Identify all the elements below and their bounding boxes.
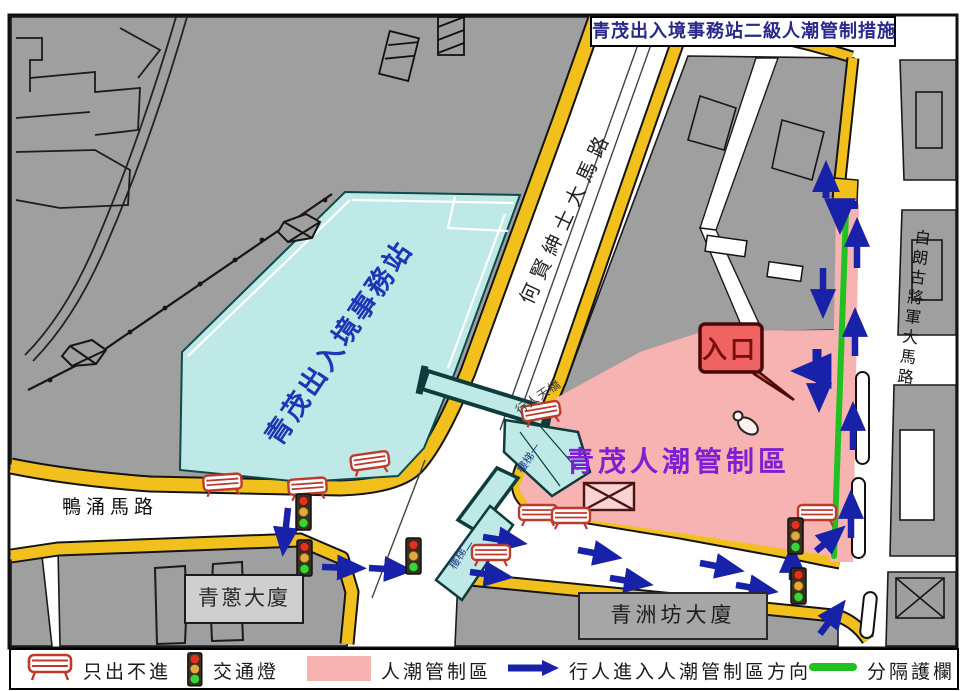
exit-only-barrier-icon <box>27 653 73 683</box>
legend-label-separation-fence: 分隔護欄 <box>867 657 955 684</box>
entrance-label: 入口 <box>701 330 759 366</box>
legend: 只出不進 交通燈 人潮管制區 行人進入人潮管制區方向 分隔護欄 <box>9 648 959 690</box>
building-label-cheng-chong: 青蔥大廈 <box>184 574 304 624</box>
traffic-light-icon <box>187 652 203 687</box>
traffic-light-icon <box>788 518 803 554</box>
building-label-ilha-verde: 青洲坊大廈 <box>578 592 768 640</box>
traffic-light-icon <box>296 494 311 530</box>
crossed-box <box>584 483 634 510</box>
road-label-ap-chung: 鴨涌馬路 <box>62 492 158 519</box>
legend-label-traffic-light: 交通燈 <box>213 657 279 684</box>
traffic-light-icon <box>406 538 421 574</box>
crowd-zone-swatch <box>307 656 371 681</box>
crowd-zone-label: 青茂人潮管制區 <box>566 440 816 480</box>
legend-label-pedestrian-direction: 行人進入人潮管制區方向 <box>569 657 811 684</box>
pedestrian-arrow-icon <box>506 659 560 677</box>
legend-label-crowd-zone: 人潮管制區 <box>381 657 491 684</box>
crowd-control-map: 青茂出入境事務站二級人潮管制措施 青茂出入境事務站 青茂人潮管制區 入口 何賢紳… <box>0 0 967 691</box>
map-title: 青茂出入境事務站二級人潮管制措施 <box>590 16 896 47</box>
traffic-light-icon <box>791 568 806 604</box>
legend-label-exit-only: 只出不進 <box>83 657 171 684</box>
map-canvas <box>0 0 967 691</box>
traffic-light-icon <box>297 540 312 576</box>
separation-fence-icon <box>809 663 857 671</box>
